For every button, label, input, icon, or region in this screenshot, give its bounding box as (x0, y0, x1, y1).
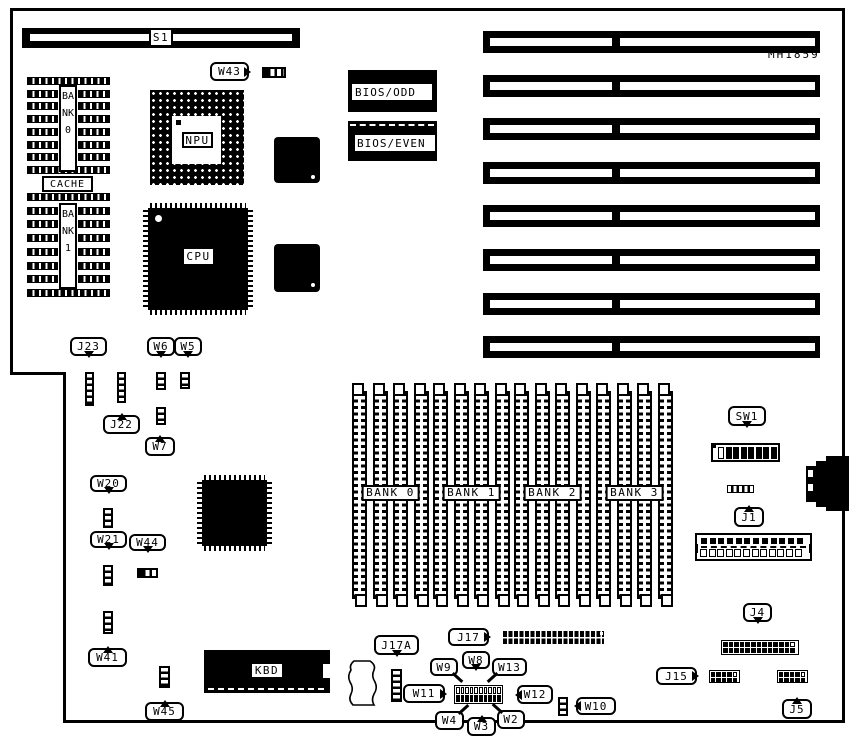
expansion-slot (483, 249, 820, 271)
power-socket (709, 549, 716, 557)
power-pin (736, 538, 742, 544)
dip-chip (27, 234, 58, 242)
keyboard-din-notch-2 (808, 484, 813, 491)
jumper-w10 (558, 697, 568, 716)
cache-label: CACHE (42, 176, 93, 192)
jumper-w41 (103, 611, 113, 634)
expansion-slot (483, 162, 820, 184)
pin-row (456, 695, 501, 702)
callout-j22: J22 (103, 415, 140, 434)
power-socket (786, 549, 793, 557)
power-pin (710, 538, 716, 544)
power-pin (727, 538, 733, 544)
jumper-w43 (262, 67, 286, 78)
pin (474, 695, 478, 702)
pin (465, 695, 469, 702)
pin (479, 695, 483, 702)
bios-even-dashed-line (350, 124, 434, 126)
cpu-label: CPU (184, 249, 213, 264)
pin (470, 695, 474, 702)
pin (795, 678, 800, 683)
pin (790, 672, 795, 677)
pin (784, 678, 789, 683)
dip-switch-position (756, 447, 762, 459)
jumper-w20 (103, 508, 113, 528)
pin (795, 672, 800, 677)
dip-chip (27, 289, 110, 297)
pin (779, 642, 784, 647)
header-j15 (709, 670, 740, 683)
pin (456, 695, 460, 702)
pin (722, 678, 727, 683)
pin (727, 672, 732, 677)
pin-row (723, 648, 797, 653)
header-j22 (117, 372, 126, 403)
power-socket (769, 549, 776, 557)
pin (784, 672, 789, 677)
j17-end-dot (600, 632, 603, 635)
jumper-w6 (156, 372, 166, 390)
power-socket (700, 549, 707, 557)
power-pin (762, 538, 768, 544)
pin (722, 672, 727, 677)
pin (751, 642, 756, 647)
pin (779, 672, 784, 677)
callout-j17: J17 (448, 628, 489, 646)
power-connector-sockets (700, 549, 803, 557)
dip-chip (27, 128, 58, 136)
header-j1 (727, 485, 754, 493)
pin (484, 695, 488, 702)
jumper-w21 (103, 565, 113, 586)
pin (723, 648, 728, 653)
header-j23 (85, 372, 94, 406)
power-socket (726, 549, 733, 557)
callout-w9: W9 (430, 658, 458, 676)
pin (757, 648, 762, 653)
pin (461, 687, 465, 694)
callout-w6: W6 (147, 337, 175, 356)
pin (497, 695, 501, 702)
bios-even-label: BIOS/EVEN (355, 135, 435, 151)
callout-j17a: J17A (374, 635, 419, 655)
keyboard-din-notch-1 (808, 470, 813, 477)
kbd-dashed-line (208, 688, 324, 690)
cache-bank0-vertical-label: BANK0 (59, 85, 77, 172)
pin (790, 648, 795, 653)
dip-chip (78, 234, 110, 242)
bios-odd-chip: BIOS/ODD (348, 70, 437, 112)
pin (474, 687, 478, 694)
bios-odd-label: BIOS/ODD (352, 84, 432, 100)
pin (733, 678, 738, 683)
pin (734, 648, 739, 653)
pin-row (779, 678, 807, 683)
bank-label: BANK 2 (523, 485, 582, 501)
pin (779, 678, 784, 683)
dip-switch-position (771, 447, 777, 459)
pin (493, 687, 497, 694)
dip-chip (78, 275, 110, 283)
power-connector (695, 533, 812, 561)
pin (751, 648, 756, 653)
cpu-pin1-dot (155, 215, 162, 222)
callout-w45: W45 (145, 702, 184, 721)
power-socket (743, 549, 750, 557)
callout-w2: W2 (497, 710, 525, 729)
qfp-chip (197, 475, 272, 551)
bank-label: BANK 3 (605, 485, 664, 501)
dip-chip (78, 220, 110, 228)
callout-w7: W7 (145, 437, 175, 456)
power-socket (760, 549, 767, 557)
power-socket (734, 549, 741, 557)
dip-switch-position (726, 447, 732, 459)
header-j5 (777, 670, 808, 683)
dip-chip (27, 141, 58, 149)
pin (740, 642, 745, 647)
dip-chip (27, 77, 110, 85)
pin (479, 687, 483, 694)
dip-chip (27, 153, 58, 161)
pin (470, 687, 474, 694)
dip-chip (27, 220, 58, 228)
dip-chip (27, 275, 58, 283)
jumper-block-w (454, 685, 503, 704)
dip-switch-sw1 (711, 443, 780, 462)
qfp-chip-body (202, 480, 267, 546)
dip-chip (27, 262, 58, 270)
pin-row (456, 687, 501, 694)
power-pin (771, 538, 777, 544)
dip-chip (27, 207, 58, 215)
expansion-slot (483, 75, 820, 97)
kbd-label: KBD (251, 663, 283, 678)
power-socket (752, 549, 759, 557)
pin (497, 687, 501, 694)
pin (773, 648, 778, 653)
pin (465, 687, 469, 694)
motherboard-diagram: MH1859 S1 W43 BANK0 CACHE BANK1 NPU CPU … (0, 0, 851, 747)
pin (729, 648, 734, 653)
board-outline (0, 0, 851, 747)
callout-w41: W41 (88, 648, 127, 667)
bank-label: BANK 1 (442, 485, 501, 501)
kbd-notch (323, 664, 330, 678)
expansion-slot (483, 293, 820, 315)
memory-bank: BANK 2 (514, 391, 591, 599)
power-pin (701, 538, 707, 544)
asic-chip-2-dot (311, 283, 315, 287)
callout-w8: W8 (462, 651, 490, 669)
callout-j15: J15 (656, 667, 697, 685)
pin (762, 642, 767, 647)
pin (716, 678, 721, 683)
pin (768, 648, 773, 653)
pin (801, 678, 806, 683)
power-pin (788, 538, 794, 544)
power-socket (717, 549, 724, 557)
dip-chip (27, 115, 58, 123)
power-connector-end-left (696, 544, 698, 553)
callout-w13: W13 (492, 658, 527, 676)
expansion-slot (483, 31, 820, 53)
sw1-notch (712, 444, 716, 448)
memory-bank: BANK 3 (596, 391, 673, 599)
dip-chip (78, 153, 110, 161)
pin (801, 672, 806, 677)
dip-switch-position (718, 447, 724, 459)
jumper-w5 (180, 372, 190, 389)
callout-j23: J23 (70, 337, 107, 356)
dip-chip-row (27, 193, 110, 201)
pin-row (711, 678, 739, 683)
npu-label: NPU (182, 132, 213, 148)
callout-w3: W3 (467, 717, 496, 736)
pin (790, 642, 795, 647)
dip-chip (27, 193, 110, 201)
dip-chip-row (27, 77, 110, 85)
pin (768, 642, 773, 647)
bank-label: BANK 0 (361, 485, 420, 501)
jumper-w44 (137, 568, 158, 578)
callout-w12: W12 (517, 685, 553, 704)
pin (779, 648, 784, 653)
callout-j5: J5 (782, 699, 812, 719)
dip-chip (27, 102, 58, 110)
pin (757, 642, 762, 647)
dip-chip (78, 128, 110, 136)
bios-even-chip: BIOS/EVEN (348, 121, 437, 161)
power-pin (718, 538, 724, 544)
callout-sw1: SW1 (728, 406, 766, 426)
pin-row (723, 642, 797, 647)
pin (461, 695, 465, 702)
dip-chip (78, 262, 110, 270)
asic-chip-2 (274, 244, 320, 292)
expansion-slot (483, 118, 820, 140)
power-pin (744, 538, 750, 544)
keyboard-din-connector-mid (816, 461, 826, 507)
pin (488, 695, 492, 702)
power-connector-pins (701, 538, 805, 544)
header-j17 (503, 631, 604, 644)
pin (785, 648, 790, 653)
pin (711, 672, 716, 677)
pin (729, 642, 734, 647)
pin-row (711, 672, 739, 677)
jumper-w45 (159, 666, 170, 688)
dip-chip-row (27, 289, 110, 297)
npu-pin1-mark (176, 120, 181, 125)
pin (716, 672, 721, 677)
power-pin (753, 538, 759, 544)
callout-w5: W5 (174, 337, 202, 356)
pin (745, 642, 750, 647)
power-connector-dashes (701, 546, 806, 548)
dip-switch-position (763, 447, 769, 459)
power-socket (795, 549, 802, 557)
power-pin (779, 538, 785, 544)
dip-chip (78, 115, 110, 123)
pin (734, 642, 739, 647)
dip-chip (78, 207, 110, 215)
pin (733, 672, 738, 677)
header-j17a (391, 669, 402, 702)
pin (493, 695, 497, 702)
dip-chip (27, 90, 58, 98)
callout-w20: W20 (90, 475, 127, 492)
pin (484, 687, 488, 694)
pin (762, 648, 767, 653)
callout-w4: W4 (435, 711, 464, 730)
callout-w21: W21 (90, 531, 127, 548)
jumper-w7 (156, 407, 166, 425)
pin (785, 642, 790, 647)
pin (723, 642, 728, 647)
dip-chip (78, 248, 110, 256)
power-pin (797, 538, 803, 544)
asic-chip-1-dot (311, 175, 315, 179)
pin (745, 648, 750, 653)
memory-bank: BANK 1 (433, 391, 510, 599)
dip-chip (78, 102, 110, 110)
callout-w10: W10 (576, 697, 616, 715)
pin-row (779, 672, 807, 677)
pin (456, 687, 460, 694)
dip-chip (78, 90, 110, 98)
callout-w43: W43 (210, 62, 249, 81)
asic-chip-1 (274, 137, 320, 183)
pin (488, 687, 492, 694)
expansion-slot (483, 205, 820, 227)
expansion-slot (483, 336, 820, 358)
pin (773, 642, 778, 647)
callout-w11: W11 (403, 684, 445, 703)
crystal-oscillator (345, 659, 379, 708)
callout-j1: J1 (734, 507, 764, 527)
dip-switch-position (748, 447, 754, 459)
dip-chip (78, 141, 110, 149)
power-socket (777, 549, 784, 557)
keyboard-din-connector-outer (826, 456, 849, 511)
cache-bank1-vertical-label: BANK1 (59, 203, 77, 289)
pin (740, 648, 745, 653)
callout-w44: W44 (129, 534, 166, 551)
pin (711, 678, 716, 683)
header-j4 (721, 640, 799, 655)
dip-switch-position (741, 447, 747, 459)
s1-label: S1 (149, 28, 173, 47)
power-connector-end-right (809, 544, 811, 553)
dip-chip (27, 248, 58, 256)
pin (790, 678, 795, 683)
memory-bank: BANK 0 (352, 391, 429, 599)
pin (727, 678, 732, 683)
callout-j4: J4 (743, 603, 772, 622)
dip-switch-position (733, 447, 739, 459)
